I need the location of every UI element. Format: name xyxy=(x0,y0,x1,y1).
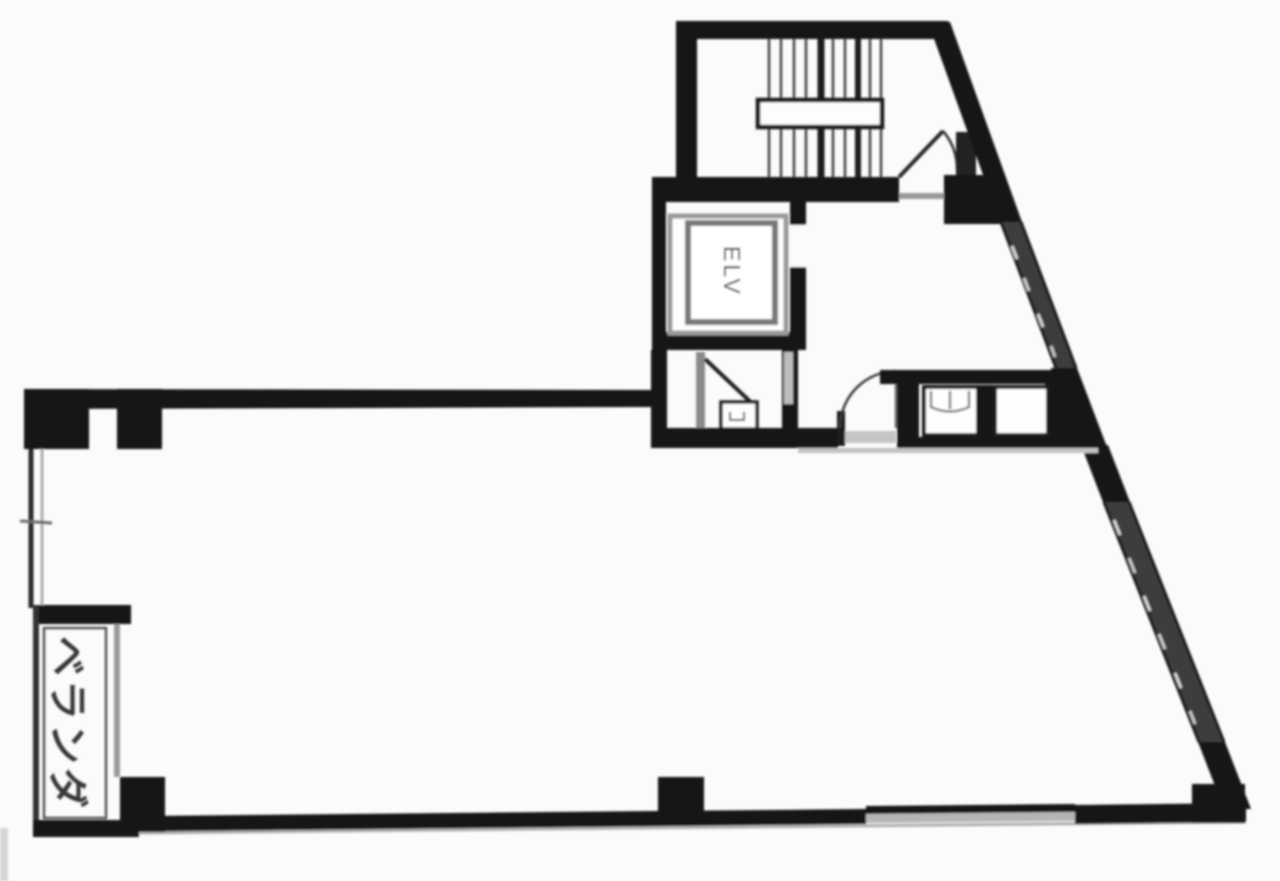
svg-text:ELV: ELV xyxy=(719,246,745,297)
svg-text:ベランダ: ベランダ xyxy=(45,636,89,812)
